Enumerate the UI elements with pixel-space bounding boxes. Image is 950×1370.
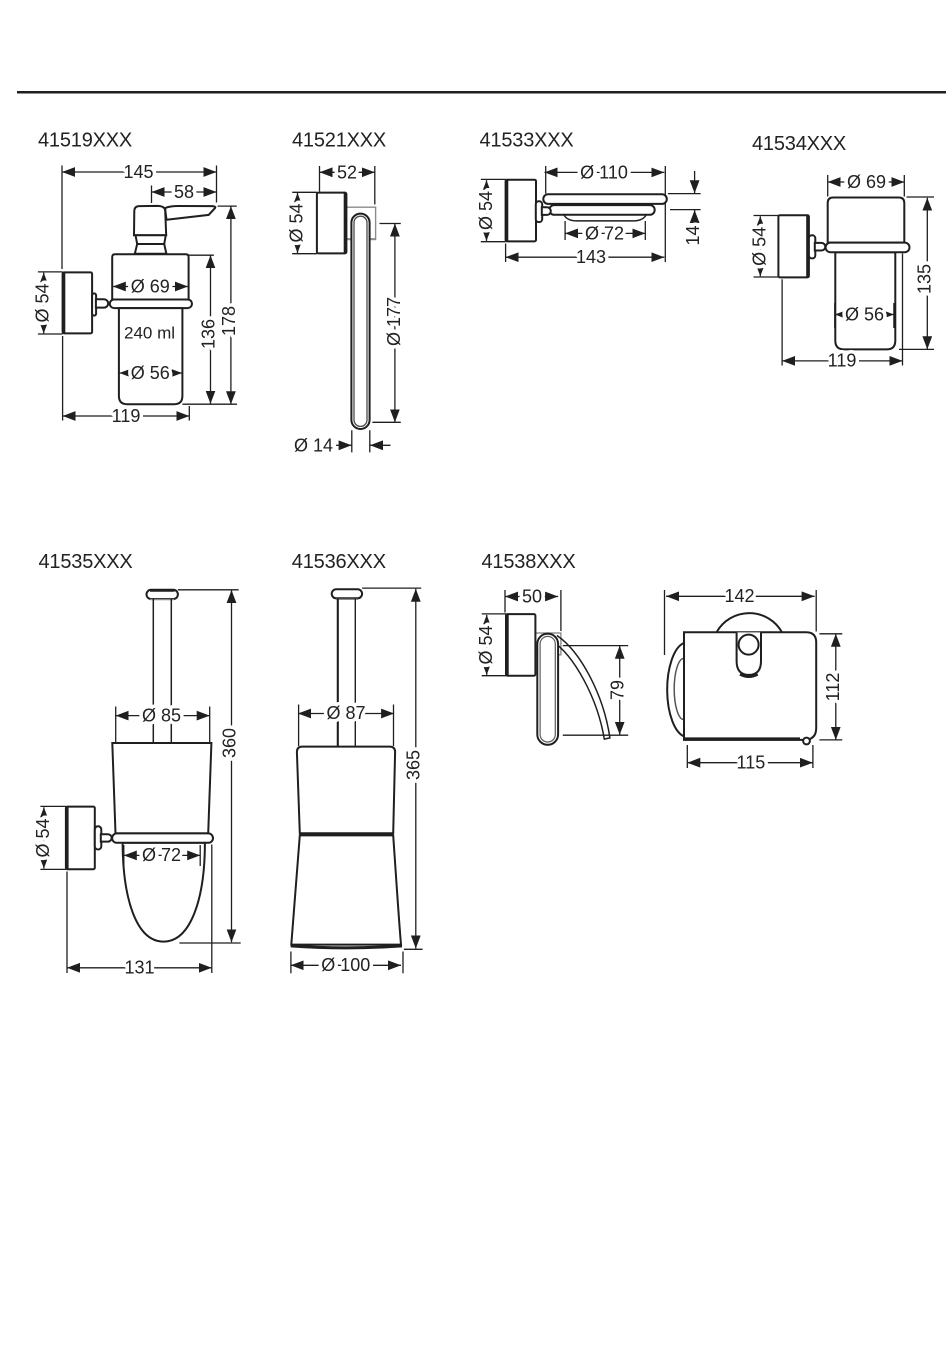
svg-text:Ø 54: Ø 54	[287, 203, 307, 242]
svg-text:145: 145	[123, 162, 153, 182]
svg-text:136: 136	[199, 319, 219, 349]
svg-text:Ø 72: Ø 72	[585, 223, 624, 243]
svg-text:41521XXX: 41521XXX	[292, 130, 386, 152]
svg-text:41534XXX: 41534XXX	[752, 133, 846, 155]
svg-text:Ø 56: Ø 56	[131, 363, 170, 383]
svg-text:Ø 54: Ø 54	[476, 625, 496, 664]
svg-text:Ø 177: Ø 177	[384, 297, 404, 346]
svg-text:52: 52	[337, 162, 357, 182]
svg-text:Ø 54: Ø 54	[33, 283, 53, 322]
svg-text:79: 79	[607, 680, 627, 700]
svg-text:135: 135	[915, 264, 935, 294]
svg-text:365: 365	[403, 750, 423, 780]
svg-text:115: 115	[737, 752, 766, 772]
svg-text:142: 142	[724, 586, 754, 606]
svg-text:Ø 87: Ø 87	[326, 703, 365, 723]
svg-text:Ø 54: Ø 54	[476, 191, 496, 230]
svg-text:41536XXX: 41536XXX	[292, 551, 386, 573]
svg-text:Ø 85: Ø 85	[142, 705, 181, 725]
svg-text:Ø 54: Ø 54	[33, 818, 53, 857]
svg-text:131: 131	[124, 958, 154, 978]
svg-text:41533XXX: 41533XXX	[480, 130, 574, 152]
svg-text:119: 119	[112, 406, 141, 426]
svg-text:Ø 100: Ø 100	[321, 955, 370, 975]
svg-text:Ø 54: Ø 54	[750, 227, 770, 266]
svg-text:14: 14	[683, 225, 703, 245]
svg-text:Ø 69: Ø 69	[847, 172, 886, 192]
svg-text:41519XXX: 41519XXX	[38, 130, 132, 152]
svg-text:143: 143	[576, 247, 606, 267]
svg-text:240 ml: 240 ml	[124, 324, 175, 343]
svg-text:Ø 69: Ø 69	[131, 276, 170, 296]
svg-text:41535XXX: 41535XXX	[39, 551, 133, 573]
svg-text:Ø 14: Ø 14	[294, 435, 333, 455]
svg-text:Ø 110: Ø 110	[580, 162, 628, 182]
svg-text:Ø 72: Ø 72	[142, 845, 181, 865]
svg-text:360: 360	[220, 728, 240, 758]
svg-text:41538XXX: 41538XXX	[482, 551, 576, 573]
svg-text:58: 58	[174, 182, 194, 202]
svg-text:119: 119	[828, 351, 857, 371]
svg-text:112: 112	[823, 673, 843, 702]
svg-text:50: 50	[522, 586, 542, 606]
svg-text:178: 178	[219, 306, 239, 336]
svg-text:Ø 56: Ø 56	[845, 304, 884, 324]
